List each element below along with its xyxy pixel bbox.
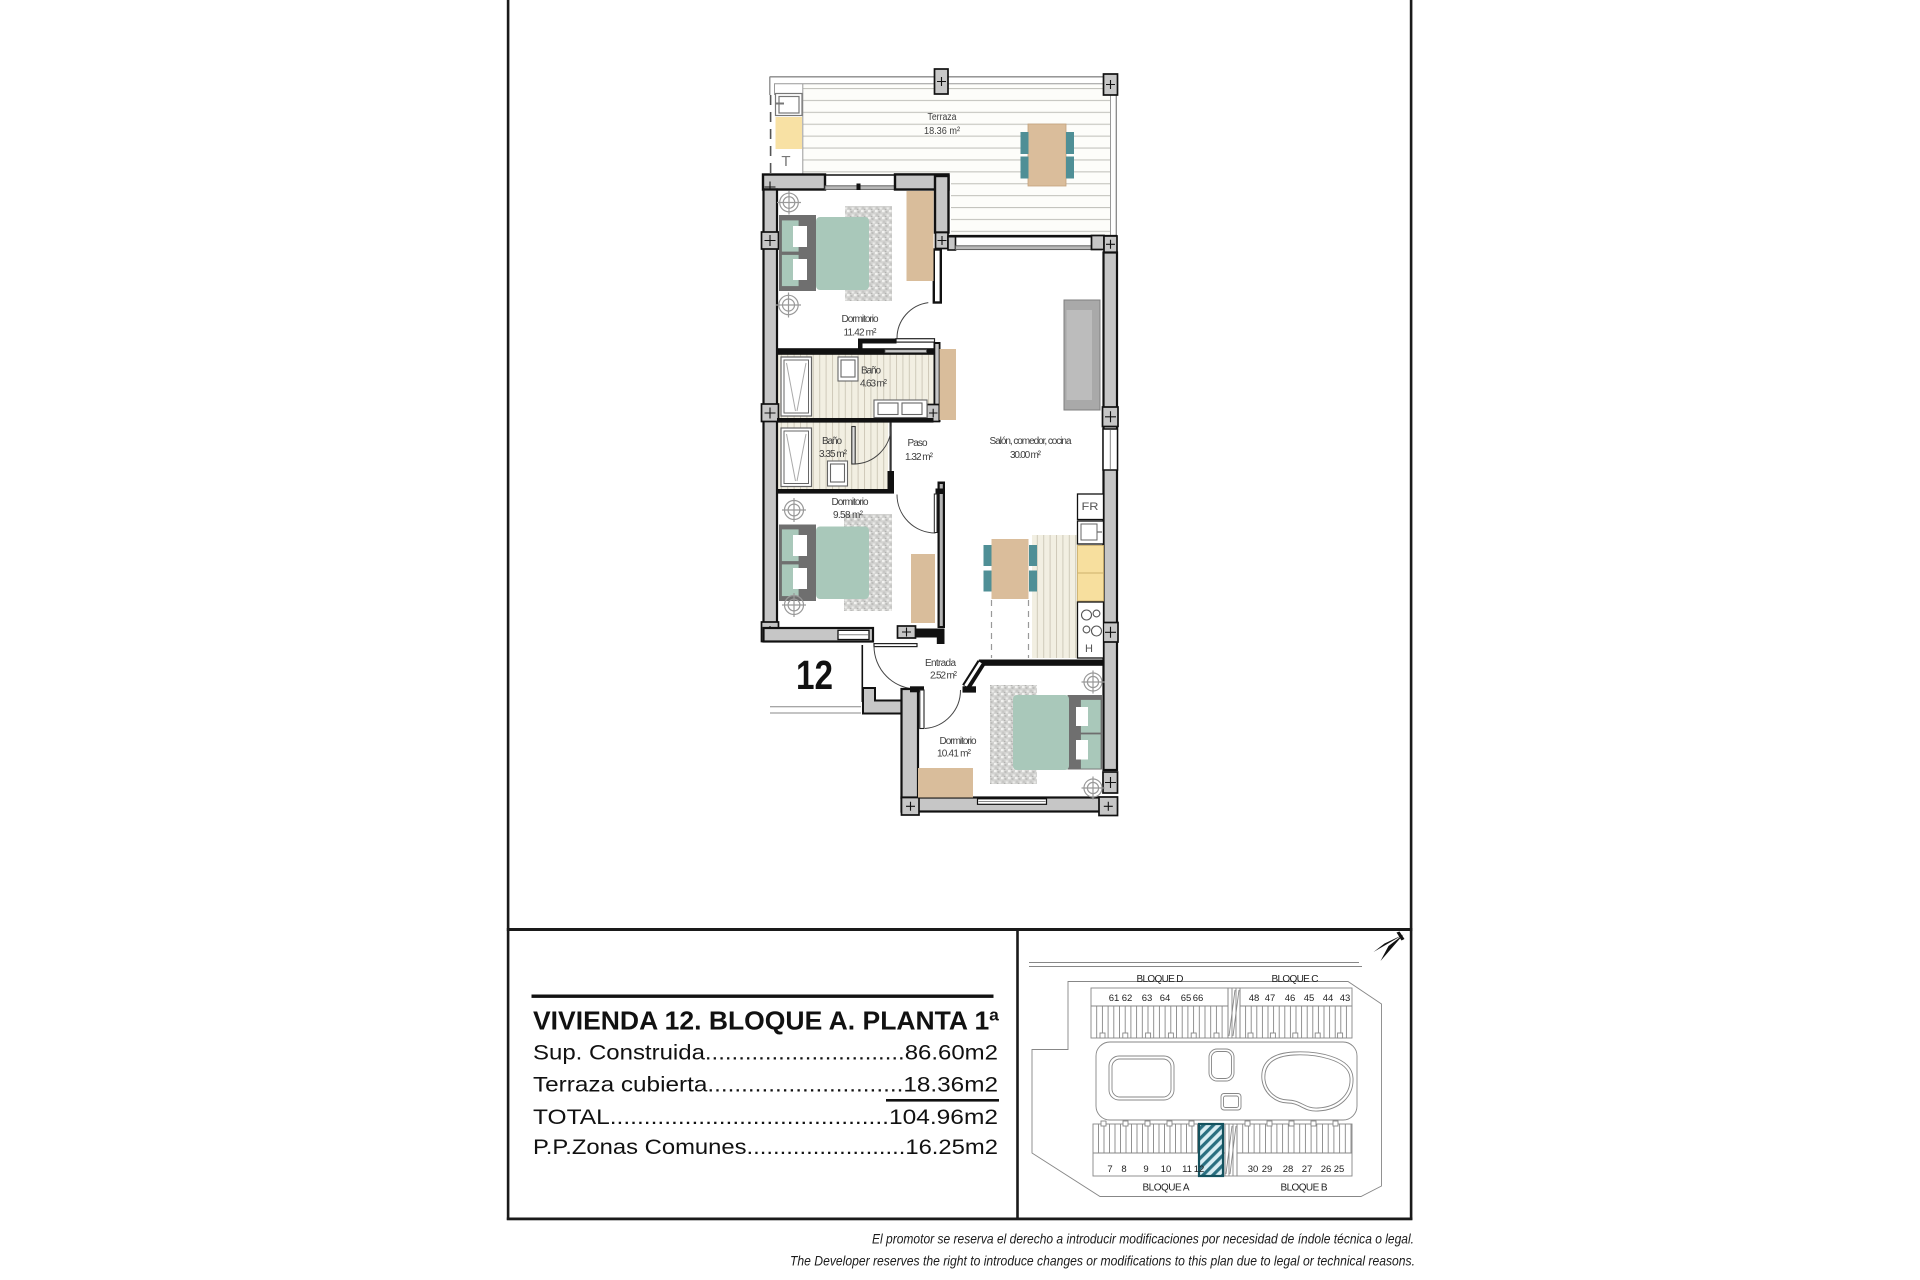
svg-text:45: 45 (1304, 993, 1315, 1004)
svg-text:Dormitorio: Dormitorio (940, 736, 977, 747)
svg-text:28: 28 (1283, 1164, 1294, 1175)
svg-text:30: 30 (1248, 1164, 1259, 1175)
svg-text:48: 48 (1249, 993, 1260, 1004)
svg-text:25: 25 (1334, 1164, 1345, 1175)
svg-text:9: 9 (1143, 1164, 1148, 1175)
svg-text:1.32 m²: 1.32 m² (905, 452, 934, 463)
svg-text:11.42 m²: 11.42 m² (844, 328, 878, 339)
svg-text:4.63 m²: 4.63 m² (860, 379, 888, 390)
svg-text:12: 12 (1194, 1164, 1205, 1175)
svg-text:9.58 m²: 9.58 m² (833, 510, 864, 521)
svg-text:8: 8 (1121, 1164, 1126, 1175)
svg-text:26: 26 (1321, 1164, 1332, 1175)
svg-text:P.P.Zonas Comunes.............: P.P.Zonas Comunes.......................… (533, 1136, 998, 1159)
svg-text:FR: FR (1082, 501, 1099, 513)
svg-text:30.00 m²: 30.00 m² (1010, 450, 1042, 461)
svg-text:12: 12 (796, 652, 833, 698)
svg-text:43: 43 (1340, 993, 1351, 1004)
svg-text:65: 65 (1181, 993, 1192, 1004)
svg-text:Dormitorio: Dormitorio (842, 314, 879, 325)
svg-text:Terraza cubierta..............: Terraza cubierta........................… (533, 1074, 998, 1097)
svg-text:66: 66 (1193, 993, 1204, 1004)
svg-text:47: 47 (1265, 993, 1276, 1004)
svg-text:BLOQUE C: BLOQUE C (1272, 974, 1319, 985)
svg-text:BLOQUE A: BLOQUE A (1143, 1183, 1190, 1194)
svg-text:63: 63 (1142, 993, 1153, 1004)
svg-text:Baño: Baño (822, 436, 842, 447)
svg-text:10.41 m²: 10.41 m² (937, 749, 972, 760)
svg-text:The Developer reserves the rig: The Developer reserves the right to intr… (790, 1253, 1415, 1269)
svg-text:46: 46 (1285, 993, 1296, 1004)
svg-text:3.35 m²: 3.35 m² (819, 449, 848, 460)
svg-text:Paso: Paso (908, 438, 928, 449)
svg-text:VIVIENDA 12. BLOQUE A. PLANTA: VIVIENDA 12. BLOQUE A. PLANTA 1ª (533, 1006, 999, 1036)
svg-text:29: 29 (1262, 1164, 1273, 1175)
svg-text:Dormitorio: Dormitorio (832, 497, 869, 508)
svg-text:62: 62 (1122, 993, 1133, 1004)
svg-text:Entrada: Entrada (925, 658, 956, 669)
svg-text:TOTAL.........................: TOTAL...................................… (533, 1106, 998, 1129)
svg-text:H: H (1085, 643, 1093, 655)
svg-text:61: 61 (1109, 993, 1120, 1004)
svg-text:2.52 m²: 2.52 m² (930, 671, 958, 682)
svg-text:11: 11 (1182, 1164, 1192, 1175)
svg-text:El promotor se reserva el dere: El promotor se reserva el derecho a intr… (872, 1231, 1414, 1247)
svg-text:27: 27 (1302, 1164, 1313, 1175)
svg-text:Terraza: Terraza (928, 112, 957, 123)
svg-text:BLOQUE B: BLOQUE B (1281, 1183, 1328, 1194)
svg-text:64: 64 (1160, 993, 1171, 1004)
svg-text:7: 7 (1107, 1164, 1112, 1175)
svg-text:Baño: Baño (861, 366, 881, 377)
svg-text:10: 10 (1161, 1164, 1172, 1175)
svg-text:BLOQUE D: BLOQUE D (1137, 974, 1184, 985)
svg-text:T: T (781, 153, 790, 170)
svg-text:44: 44 (1323, 993, 1334, 1004)
svg-text:Sup. Construida...............: Sup. Construida.........................… (533, 1042, 998, 1065)
svg-text:Salón, comedor, cocina: Salón, comedor, cocina (990, 436, 1072, 447)
svg-text:18.36 m²: 18.36 m² (924, 126, 961, 137)
